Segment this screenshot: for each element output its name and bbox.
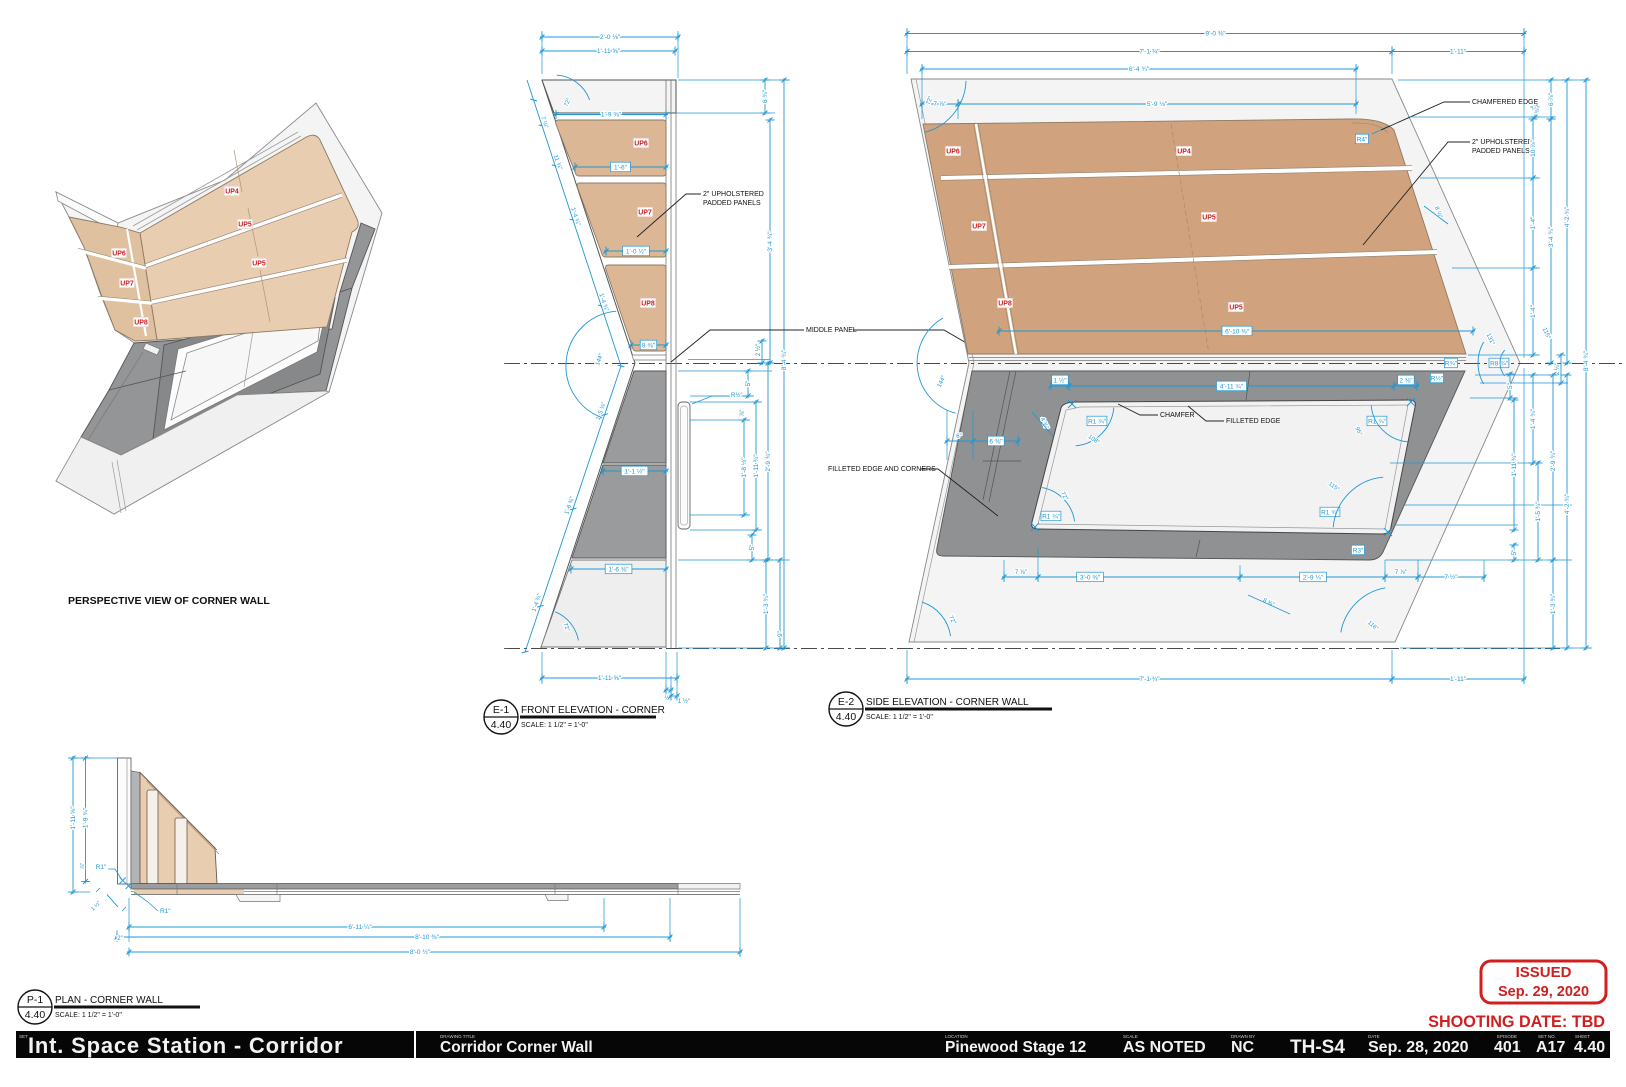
svg-text:4'-2 ¾": 4'-2 ¾" — [1564, 493, 1571, 514]
svg-text:5": 5" — [745, 380, 752, 387]
svg-text:SET: SET — [19, 1034, 28, 1039]
svg-text:1'-6": 1'-6" — [614, 164, 628, 171]
svg-text:UP8: UP8 — [641, 301, 655, 308]
svg-text:6 ⅜": 6 ⅜" — [989, 438, 1003, 445]
svg-text:6'-11 ¼": 6'-11 ¼" — [348, 924, 372, 931]
svg-text:Sep. 28, 2020: Sep. 28, 2020 — [1368, 1039, 1469, 1056]
svg-text:UP4: UP4 — [1177, 149, 1191, 156]
svg-text:1'-4 ¾": 1'-4 ¾" — [1530, 408, 1537, 429]
svg-text:9'-0 ⅜": 9'-0 ⅜" — [1205, 31, 1226, 38]
svg-text:UP8: UP8 — [998, 301, 1012, 308]
svg-text:SIDE ELEVATION - CORNER WALL: SIDE ELEVATION - CORNER WALL — [866, 697, 1029, 708]
svg-text:4.40: 4.40 — [491, 719, 512, 731]
svg-text:7'-1 ¾": 7'-1 ¾" — [1139, 49, 1160, 56]
svg-text:⅞": ⅞" — [740, 409, 746, 416]
svg-text:UP6: UP6 — [634, 141, 648, 148]
svg-text:TH-S4: TH-S4 — [1290, 1037, 1345, 1058]
svg-text:PADDED PANELS: PADDED PANELS — [1472, 148, 1530, 155]
svg-text:1'-9 ¾": 1'-9 ¾" — [83, 807, 90, 828]
svg-text:8'-4 ¾": 8'-4 ¾" — [1583, 350, 1590, 371]
svg-text:3'-4 ¾": 3'-4 ¾" — [767, 231, 774, 252]
svg-text:R3": R3" — [1353, 547, 1364, 554]
svg-text:R1 ¾": R1 ¾" — [1042, 513, 1061, 520]
svg-text:UP7: UP7 — [120, 281, 134, 288]
svg-text:1'-5 ¾": 1'-5 ¾" — [1535, 501, 1542, 522]
svg-text:2": 2" — [117, 936, 122, 942]
svg-text:P-1: P-1 — [27, 994, 44, 1006]
svg-text:UP7: UP7 — [638, 210, 652, 217]
svg-text:UP8: UP8 — [134, 320, 148, 327]
svg-text:PADDED PANELS: PADDED PANELS — [703, 200, 761, 207]
svg-text:4.40: 4.40 — [836, 711, 857, 723]
svg-text:AS NOTED: AS NOTED — [1123, 1039, 1206, 1056]
svg-text:FILLETED EDGE AND CORNERS: FILLETED EDGE AND CORNERS — [828, 466, 936, 473]
svg-text:1'-0 ½": 1'-0 ½" — [626, 247, 647, 255]
svg-text:4.40: 4.40 — [25, 1009, 46, 1021]
svg-text:¾": ¾" — [1535, 106, 1541, 113]
svg-text:3'-4 ¾": 3'-4 ¾" — [1548, 226, 1555, 247]
svg-text:SCALE: 1 1/2" = 1'-0": SCALE: 1 1/2" = 1'-0" — [521, 722, 588, 729]
svg-text:1 ½": 1 ½" — [1053, 376, 1067, 384]
svg-text:R½": R½" — [731, 392, 742, 399]
svg-text:UP6: UP6 — [112, 251, 126, 258]
svg-text:5": 5" — [1507, 382, 1514, 389]
svg-text:6'-10 ⅜": 6'-10 ⅜" — [1225, 328, 1249, 335]
svg-text:2'-9 ¾": 2'-9 ¾" — [765, 451, 772, 472]
svg-text:1'-11 ¾": 1'-11 ¾" — [753, 454, 760, 478]
svg-text:1'-1 ½": 1'-1 ½" — [624, 467, 645, 475]
svg-text:UP5: UP5 — [1202, 215, 1216, 222]
svg-text:Pinewood Stage 12: Pinewood Stage 12 — [945, 1039, 1086, 1056]
svg-text:4'-11 ¾": 4'-11 ¾" — [1220, 383, 1244, 390]
svg-text:R8 ¾": R8 ¾" — [1490, 360, 1509, 367]
svg-text:2'-9 ¾": 2'-9 ¾" — [1550, 450, 1557, 471]
svg-text:Corridor Corner Wall: Corridor Corner Wall — [440, 1039, 593, 1056]
svg-text:5'-9 ⅛": 5'-9 ⅛" — [1147, 101, 1168, 108]
svg-text:10 ⅞": 10 ⅞" — [1530, 139, 1537, 156]
svg-text:ISSUED: ISSUED — [1516, 964, 1572, 981]
svg-text:2'-0 ⅛": 2'-0 ⅛" — [600, 34, 621, 41]
svg-text:6 ¾": 6 ¾" — [762, 89, 769, 103]
svg-text:1'-8 ½": 1'-8 ½" — [740, 457, 748, 478]
svg-text:8'-0 ½": 8'-0 ½" — [410, 948, 431, 956]
svg-text:7 ½": 7 ½" — [1444, 573, 1458, 581]
svg-text:SCALE: 1 1/2" = 1'-0": SCALE: 1 1/2" = 1'-0" — [55, 1012, 122, 1019]
svg-text:UP5: UP5 — [238, 222, 252, 229]
svg-text:R½": R½" — [1431, 374, 1444, 382]
svg-text:4.40: 4.40 — [1574, 1039, 1605, 1056]
svg-text:E-1: E-1 — [493, 704, 510, 716]
svg-text:2 ½": 2 ½" — [755, 344, 762, 356]
svg-text:FRONT ELEVATION - CORNER: FRONT ELEVATION - CORNER — [521, 705, 665, 716]
svg-text:R¾": R¾" — [1445, 360, 1458, 367]
svg-text:Int. Space Station - Corridor: Int. Space Station - Corridor — [28, 1033, 343, 1058]
svg-text:1'-11 ¾": 1'-11 ¾" — [1511, 453, 1518, 477]
svg-text:1'-11 ⅝": 1'-11 ⅝" — [598, 675, 622, 682]
svg-text:6'-4 ¾": 6'-4 ¾" — [1129, 66, 1150, 73]
svg-text:1'-11": 1'-11" — [1450, 676, 1467, 683]
svg-text:8'-10 ⅜": 8'-10 ⅜" — [415, 934, 439, 941]
svg-text:1'-3 ¾": 1'-3 ¾" — [763, 593, 770, 614]
svg-text:R1 ¾": R1 ¾" — [1088, 418, 1107, 425]
svg-text:NC: NC — [1231, 1039, 1255, 1056]
svg-text:SHOOTING DATE: TBD: SHOOTING DATE: TBD — [1428, 1013, 1605, 1031]
svg-text:MIDDLE PANEL: MIDDLE PANEL — [806, 327, 857, 334]
svg-text:6 ⅞": 6 ⅞" — [1548, 92, 1555, 106]
svg-text:CHAMFER: CHAMFER — [1160, 412, 1195, 419]
svg-text:PERSPECTIVE VIEW OF CORNER WAL: PERSPECTIVE VIEW OF CORNER WALL — [68, 595, 270, 607]
svg-text:7 ⅞": 7 ⅞" — [1395, 570, 1407, 576]
svg-text:4'-2 ¾": 4'-2 ¾" — [1564, 206, 1571, 227]
svg-text:8 ⅜": 8 ⅜" — [642, 342, 656, 349]
svg-text:2 ¼": 2 ¼" — [1555, 363, 1561, 375]
svg-text:401: 401 — [1494, 1039, 1521, 1056]
svg-text:Sep. 29, 2020: Sep. 29, 2020 — [1498, 984, 1589, 1000]
svg-text:1'-11 ⅝": 1'-11 ⅝" — [597, 48, 621, 55]
svg-text:2" UPHOLSTERED: 2" UPHOLSTERED — [1472, 139, 1533, 146]
svg-text:5": 5" — [749, 544, 756, 551]
svg-text:7 ⅞": 7 ⅞" — [933, 101, 947, 108]
svg-text:UP6: UP6 — [946, 149, 960, 156]
svg-text:R4": R4" — [1357, 136, 1368, 143]
svg-text:PLAN - CORNER WALL: PLAN - CORNER WALL — [55, 995, 163, 1006]
svg-text:2'-9 ¼": 2'-9 ¼" — [1303, 574, 1324, 581]
svg-text:7'-1 ¾": 7'-1 ¾" — [1139, 676, 1160, 683]
svg-text:SCALE: 1 1/2" = 1'-0": SCALE: 1 1/2" = 1'-0" — [866, 714, 933, 721]
svg-text:1'-3 ¾": 1'-3 ¾" — [1550, 593, 1557, 614]
svg-text:R1": R1" — [96, 864, 107, 871]
svg-text:5": 5" — [1511, 549, 1518, 556]
svg-text:FILLETED EDGE: FILLETED EDGE — [1226, 418, 1281, 425]
svg-text:A17: A17 — [1536, 1039, 1565, 1056]
svg-text:3'-0 ⅜": 3'-0 ⅜" — [1080, 574, 1101, 581]
svg-text:1'-11": 1'-11" — [1450, 49, 1467, 56]
svg-text:UP5: UP5 — [1229, 305, 1243, 312]
svg-text:UP4: UP4 — [225, 189, 239, 196]
svg-text:6": 6" — [956, 434, 961, 440]
svg-text:E-2: E-2 — [838, 696, 855, 708]
svg-text:2 ⅜": 2 ⅜" — [1399, 377, 1413, 384]
svg-text:9": 9" — [777, 630, 784, 637]
svg-text:2" UPHOLSTERED: 2" UPHOLSTERED — [703, 191, 764, 198]
svg-text:R1": R1" — [160, 908, 171, 915]
svg-text:1'-9 ⅜": 1'-9 ⅜" — [601, 112, 622, 119]
svg-text:⅞": ⅞" — [80, 863, 86, 870]
svg-text:1'-11 ⅝": 1'-11 ⅝" — [70, 806, 77, 830]
svg-text:UP5: UP5 — [252, 261, 266, 268]
svg-text:CHAMFERED EDGE: CHAMFERED EDGE — [1472, 99, 1538, 106]
svg-text:7 ⅞": 7 ⅞" — [1015, 570, 1027, 576]
svg-text:1 ½": 1 ½" — [678, 698, 690, 705]
svg-text:UP7: UP7 — [972, 224, 986, 231]
svg-text:1'-4": 1'-4" — [1530, 216, 1537, 230]
svg-text:8'-4 ¾": 8'-4 ¾" — [781, 349, 788, 370]
svg-text:1'-4": 1'-4" — [1530, 304, 1537, 318]
svg-text:1'-6 ⅜": 1'-6 ⅜" — [608, 566, 629, 573]
